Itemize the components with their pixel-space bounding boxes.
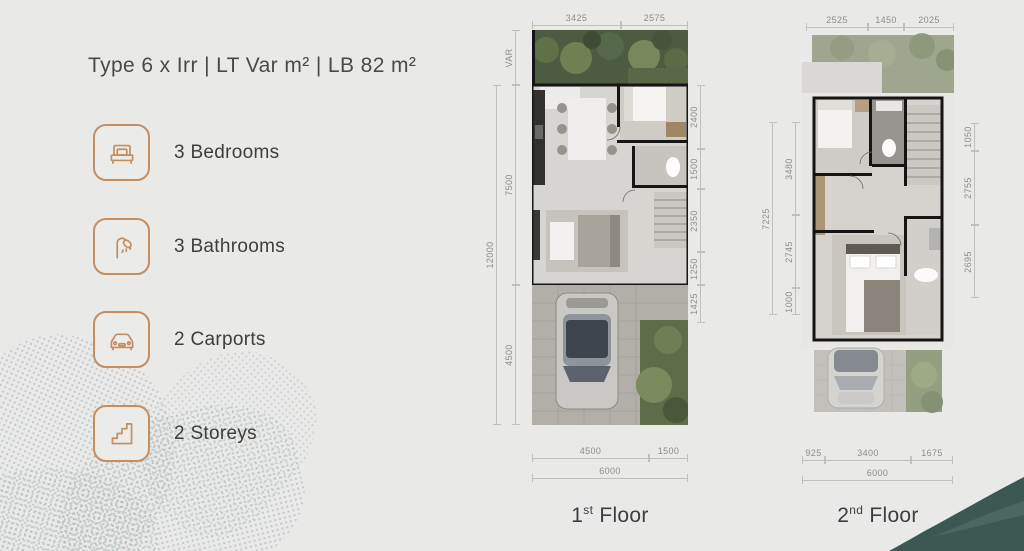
dim-plan2-left-3480: 3480 [795, 122, 807, 215]
floor-plan-infographic: Type 6 x Irr | LT Var m² | LB 82 m² 3 Be… [0, 0, 1024, 551]
plan1-carport [532, 285, 688, 425]
dim-plan1-right-1500: 1500 [700, 149, 712, 189]
dim-plan2-bottom-6000: 6000 [802, 469, 953, 481]
feature-label: 3 Bathrooms [174, 236, 285, 258]
dim-plan2-bottom-925: 925 [802, 449, 825, 461]
feature-bathrooms: 3 Bathrooms [93, 218, 285, 275]
floor-plan-1st [532, 30, 688, 425]
dim-plan2-left-1000: 1000 [795, 288, 807, 315]
dim-plan1-right-2400: 2400 [700, 85, 712, 149]
bed-icon [93, 124, 150, 181]
plan2-car-top-view [828, 348, 884, 408]
dim-plan1-left-var: VAR [515, 30, 527, 85]
dim-plan2-top-2: 1450 [868, 16, 904, 28]
floor-label-2: 2nd Floor [802, 503, 954, 528]
dim-plan2-right-2695: 2695 [974, 225, 986, 298]
dim-plan2-top-3: 2025 [904, 16, 954, 28]
stairs-icon [93, 405, 150, 462]
dim-plan1-bottom-6000: 6000 [532, 467, 688, 479]
plan1-dining [557, 98, 617, 160]
dim-plan2-bottom-1675: 1675 [911, 449, 953, 461]
floor-label-1: 1st Floor [532, 503, 688, 528]
dim-plan1-right-2350: 2350 [700, 189, 712, 252]
plan2-bathroom2 [906, 220, 942, 335]
plan1-stairs [654, 192, 688, 248]
plan1-bedroom [620, 85, 688, 143]
plan2-bedroom2 [814, 98, 872, 173]
floor-plan-2nd [802, 30, 954, 415]
dim-plan1-bottom-1500: 1500 [649, 447, 688, 459]
feature-label: 2 Storeys [174, 423, 257, 445]
dim-plan2-right-1050: 1050 [974, 123, 986, 151]
plan1-car-top-view [556, 293, 618, 409]
plan2-master-bedroom [832, 235, 906, 335]
shower-icon [93, 218, 150, 275]
feature-label: 2 Carports [174, 329, 266, 351]
plan1-bathroom [635, 146, 688, 188]
dim-plan2-right-2755: 2755 [974, 151, 986, 225]
plan2-carport-faded [814, 348, 943, 413]
dim-plan2-left-2745: 2745 [795, 215, 807, 288]
dim-plan1-top-2: 2575 [621, 14, 688, 26]
plan2-bathroom [872, 98, 906, 166]
feature-label: 3 Bedrooms [174, 142, 279, 164]
dim-plan1-bottom-4500: 4500 [532, 447, 649, 459]
dim-plan1-right-1425: 1425 [700, 285, 712, 323]
plan-type-title: Type 6 x Irr | LT Var m² | LB 82 m² [88, 54, 508, 78]
dim-plan1-left-4500: 4500 [515, 285, 527, 425]
dim-plan1-left-7500: 7500 [515, 85, 527, 285]
dim-plan1-left-total: 12000 [496, 85, 508, 425]
plan1-garden-top [532, 30, 688, 85]
feature-bedrooms: 3 Bedrooms [93, 124, 279, 181]
dim-plan2-top-1: 2525 [806, 16, 868, 28]
dim-plan1-right-1250: 1250 [700, 252, 712, 285]
plan1-kitchen [532, 90, 545, 185]
car-icon [93, 311, 150, 368]
plan1-garden-bottom [636, 320, 688, 425]
dim-plan2-left-total: 7225 [772, 122, 784, 315]
feature-carports: 2 Carports [93, 311, 266, 368]
dim-plan1-top-1: 3425 [532, 14, 621, 26]
dim-plan2-bottom-3400: 3400 [825, 449, 911, 461]
plan1-living [532, 210, 628, 272]
feature-storeys: 2 Storeys [93, 405, 257, 462]
plan2-stairs [906, 105, 942, 185]
plan2-wardrobe [814, 175, 825, 235]
